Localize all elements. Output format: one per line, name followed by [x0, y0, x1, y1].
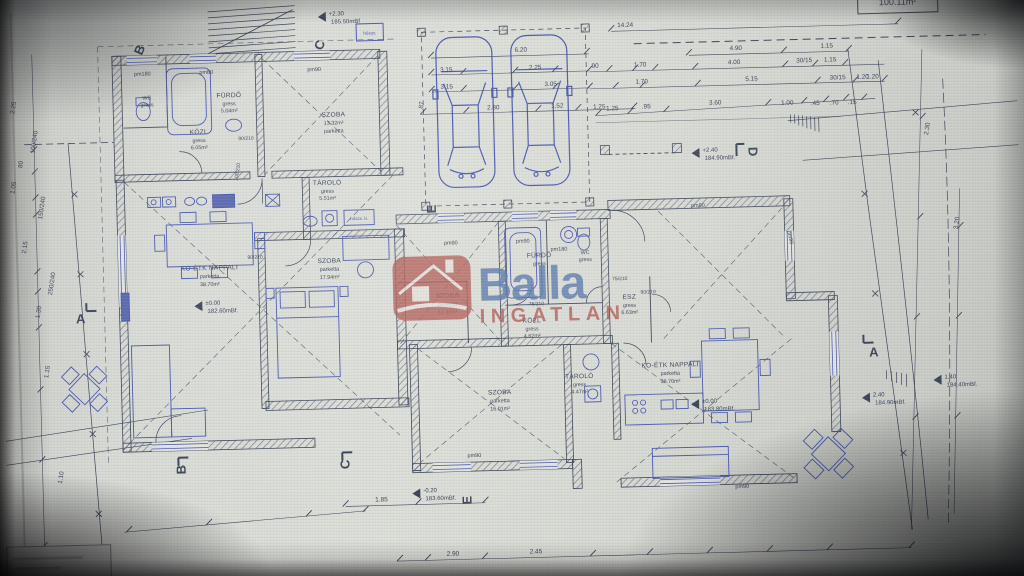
svg-text:1.15: 1.15 — [43, 365, 52, 379]
svg-text:150/240: 150/240 — [37, 196, 47, 220]
svg-text:250/240: 250/240 — [47, 271, 57, 295]
svg-text:90/210: 90/210 — [238, 136, 254, 142]
svg-text:184.90mBf.: 184.90mBf. — [705, 155, 736, 162]
svg-text:4.47m²: 4.47m² — [571, 389, 588, 395]
svg-text:3.05: 3.05 — [544, 81, 557, 88]
svg-text:75/210: 75/210 — [612, 276, 628, 282]
room-label-wc-left: WCgress — [140, 95, 154, 108]
svg-text:5.15: 5.15 — [745, 75, 758, 82]
svg-text:1.85: 1.85 — [375, 496, 388, 503]
svg-text:parketta: parketta — [320, 267, 340, 274]
svg-text:SZOBA: SZOBA — [322, 111, 346, 119]
svg-text:3.20: 3.20 — [953, 216, 962, 230]
svg-text:2.25: 2.25 — [9, 101, 18, 115]
svg-text:WC: WC — [142, 95, 151, 101]
svg-text:184.90mBf.: 184.90mBf. — [875, 400, 906, 407]
svg-text:182.60mBf.: 182.60mBf. — [207, 308, 238, 315]
svg-text:2.40: 2.40 — [873, 392, 885, 398]
svg-text:2.80: 2.80 — [487, 104, 500, 111]
svg-text:pm90: pm90 — [691, 203, 705, 209]
svg-text:KO-ÉTK NAPPALI: KO-ÉTK NAPPALI — [181, 262, 238, 272]
svg-text:2.45: 2.45 — [530, 548, 543, 555]
room-label-szoba-1794: SZOBAparketta17.94m² — [317, 257, 342, 281]
svg-text:183.60mBf.: 183.60mBf. — [425, 496, 456, 503]
svg-text:.87: .87 — [418, 101, 426, 111]
svg-text:±0.00: ±0.00 — [702, 399, 718, 405]
svg-text:E: E — [459, 495, 474, 504]
area-box: 100.11m² — [857, 0, 938, 14]
svg-text:100/240: 100/240 — [29, 130, 39, 154]
svg-text:2.15: 2.15 — [21, 240, 30, 254]
svg-text:183.80mBf.: 183.80mBf. — [704, 406, 735, 413]
svg-text:SZOBA: SZOBA — [317, 257, 341, 265]
svg-text:3.60: 3.60 — [709, 99, 722, 106]
floor-plan-drawing: 14.24 6.20 3.15 2.25 3.15 3.05 2.80 1.52… — [0, 0, 1024, 576]
svg-text:1.15: 1.15 — [824, 56, 837, 63]
svg-text:.90: .90 — [590, 63, 600, 70]
svg-text:hőszv.: hőszv. — [363, 30, 376, 35]
room-label-szoba-1601: SZOBAparketta16.01m² — [488, 389, 513, 413]
svg-text:3.15: 3.15 — [440, 66, 453, 73]
svg-text:2.25: 2.25 — [529, 64, 542, 71]
title-block-fragment — [7, 545, 112, 576]
svg-text:.45: .45 — [811, 100, 821, 107]
svg-text:pm90: pm90 — [444, 240, 458, 246]
svg-text:pm90: pm90 — [735, 484, 749, 490]
svg-text:1.00: 1.00 — [781, 100, 794, 107]
svg-text:90/210: 90/210 — [640, 289, 656, 295]
svg-text:1.70: 1.70 — [634, 61, 647, 68]
stairs — [203, 6, 296, 56]
svg-text:2.90: 2.90 — [447, 550, 460, 557]
svg-text:gress: gress — [321, 189, 335, 195]
svg-text:17.94m²: 17.94m² — [320, 275, 340, 282]
svg-text:gress: gress — [140, 102, 154, 108]
svg-text:parketta: parketta — [660, 371, 680, 378]
room-label-tarolo-left: TÁROLÓgress5.51m² — [313, 177, 342, 202]
svg-text:.95: .95 — [642, 103, 652, 110]
svg-text:1.25: 1.25 — [606, 105, 619, 112]
svg-text:gress: gress — [573, 382, 587, 388]
svg-text:1.15: 1.15 — [820, 43, 833, 50]
svg-text:+2.40: +2.40 — [702, 148, 718, 154]
svg-text:parketta: parketta — [200, 274, 220, 281]
svg-text:16.01m²: 16.01m² — [490, 406, 510, 413]
svg-text:30/15: 30/15 — [796, 57, 813, 64]
svg-text:gress: gress — [525, 326, 539, 332]
svg-text:38.70m²: 38.70m² — [661, 379, 681, 386]
car-right — [506, 34, 574, 186]
svg-text:5.04m²: 5.04m² — [221, 108, 238, 114]
svg-text:-0.20: -0.20 — [423, 488, 437, 494]
svg-text:gress: gress — [192, 138, 206, 144]
svg-text:30/15: 30/15 — [830, 74, 847, 81]
svg-text:gress: gress — [222, 101, 236, 107]
logo-tagline: INGATLAN — [479, 302, 625, 328]
svg-text:6.05m²: 6.05m² — [191, 145, 208, 151]
svg-text:4.00: 4.00 — [728, 59, 741, 66]
svg-text:6.20: 6.20 — [514, 47, 527, 54]
svg-text:A: A — [76, 311, 86, 326]
svg-text:pm180: pm180 — [134, 71, 151, 77]
room-label-kozl-left: KÖZLgress6.05m² — [190, 128, 209, 151]
svg-text:SZOBA: SZOBA — [488, 389, 512, 397]
svg-text:.15: .15 — [848, 99, 858, 106]
svg-text:pm80: pm80 — [199, 70, 213, 76]
elevation-entry: +2.40184.90mBf. — [691, 147, 735, 162]
svg-text:D: D — [745, 147, 760, 157]
elevation-nappali-left: ±0.00182.60mBf. — [194, 300, 238, 315]
svg-text:pm90: pm90 — [467, 453, 481, 459]
svg-text:TÁROLÓ: TÁROLÓ — [313, 177, 342, 187]
svg-text:1.25: 1.25 — [593, 103, 606, 110]
svg-text:A: A — [869, 344, 879, 359]
car-left — [431, 36, 499, 188]
elevation-nappali-right: ±0.00183.80mBf. — [691, 398, 735, 413]
svg-text:.70: .70 — [830, 99, 840, 106]
svg-text:E: E — [424, 204, 439, 213]
svg-text:5.51m²: 5.51m² — [319, 196, 336, 202]
room-label-furdo-left: FÜRDŐgress5.04m² — [216, 90, 241, 115]
svg-text:1.70: 1.70 — [635, 78, 648, 85]
svg-text:4.62m²: 4.62m² — [524, 333, 541, 339]
svg-text:100.11m²: 100.11m² — [879, 0, 917, 7]
svg-text:pm90: pm90 — [307, 67, 321, 73]
elevation-site-right-1: 1.40184.40mBf. — [933, 374, 977, 389]
svg-text:90/210: 90/210 — [247, 255, 263, 261]
svg-text:ESZ: ESZ — [622, 294, 636, 301]
svg-text:pm90: pm90 — [516, 239, 530, 245]
svg-text:1.20: 1.20 — [856, 74, 869, 81]
svg-text:pm180: pm180 — [551, 247, 568, 253]
svg-text:B: B — [131, 42, 149, 57]
svg-text:1.52: 1.52 — [551, 103, 564, 110]
screen-photo: 14.24 6.20 3.15 2.25 3.15 3.05 2.80 1.52… — [0, 0, 1024, 576]
svg-text:4.90: 4.90 — [729, 45, 742, 52]
svg-text:38.70m²: 38.70m² — [200, 282, 220, 289]
svg-text:parketta: parketta — [324, 128, 344, 135]
svg-text:1.05: 1.05 — [9, 181, 18, 195]
svg-text:KÖZL: KÖZL — [190, 128, 209, 136]
elevation-terrace: -0.20183.60mBf. — [412, 488, 456, 503]
elevation-site-right-2: 2.40184.90mBf. — [862, 392, 906, 407]
svg-text:2.30: 2.30 — [923, 122, 932, 136]
svg-text:FÜRDŐ: FÜRDŐ — [216, 90, 241, 100]
svg-text:13.32m²: 13.32m² — [324, 120, 344, 127]
room-label-nappali-left: KO-ÉTK NAPPALIparketta38.70m² — [181, 262, 239, 288]
svg-text:80: 80 — [17, 160, 25, 169]
svg-text:1.30: 1.30 — [35, 305, 44, 319]
svg-text:C: C — [337, 459, 352, 469]
svg-text:hőszv. b.: hőszv. b. — [350, 216, 368, 221]
svg-text:±0.00: ±0.00 — [205, 301, 221, 307]
svg-text:C: C — [311, 37, 329, 52]
elevation-top: +2.30185.50mBf — [318, 11, 361, 26]
svg-text:1.40: 1.40 — [944, 374, 956, 380]
svg-text:184.40mBf.: 184.40mBf. — [947, 382, 978, 389]
svg-text:+2.30: +2.30 — [329, 11, 345, 17]
svg-text:parketta: parketta — [490, 398, 510, 405]
svg-text:B: B — [174, 465, 189, 475]
svg-text:14.24: 14.24 — [617, 22, 634, 29]
svg-text:1.10: 1.10 — [57, 471, 66, 485]
svg-text:KO-ÉTK NAPPALI: KO-ÉTK NAPPALI — [641, 359, 698, 369]
svg-text:3.15: 3.15 — [440, 83, 453, 90]
room-label-szoba-1332: SZOBA13.32m²parketta — [322, 111, 347, 135]
